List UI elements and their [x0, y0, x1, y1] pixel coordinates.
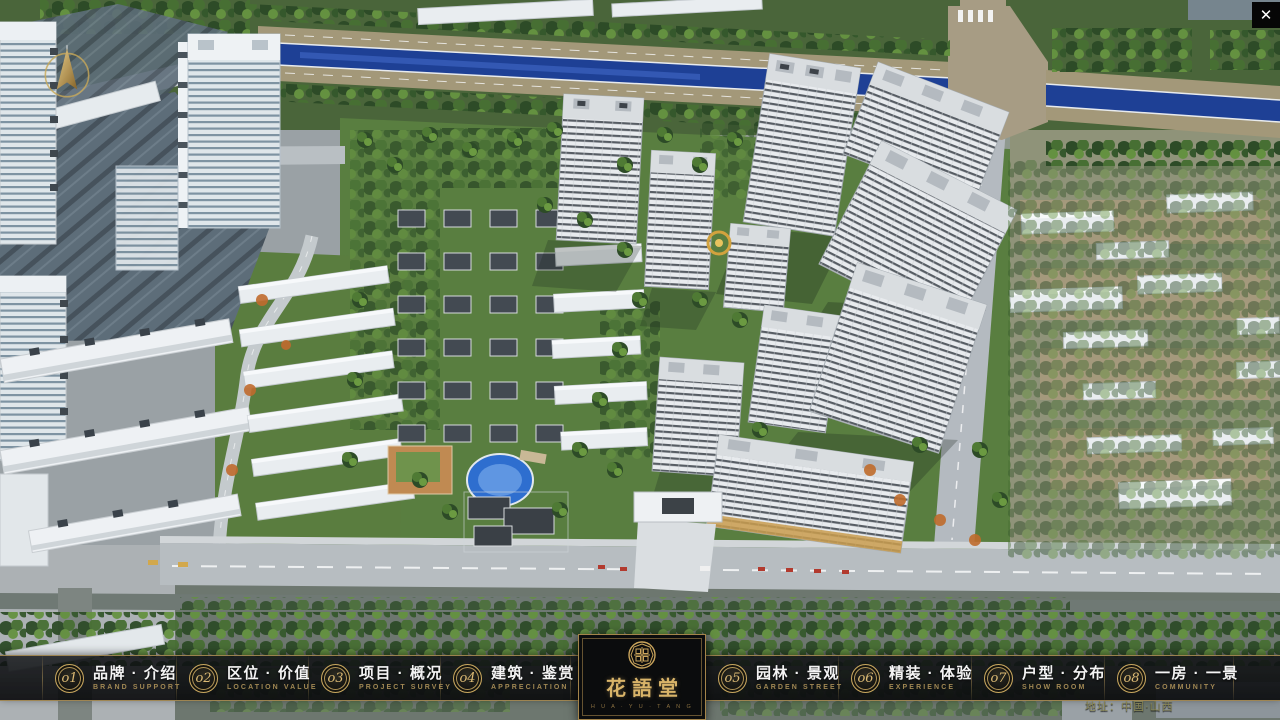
nav-item-brand-intro[interactable]: o1 品牌 · 介绍 BRAND SUPPORT: [42, 656, 174, 700]
nav-item-community[interactable]: o8 一房 · 一景 COMMUNITY: [1104, 656, 1236, 700]
nav-item-badge: o4: [453, 664, 482, 693]
nav-item-label-zh: 一房 · 一景: [1155, 666, 1239, 681]
nav-item-label-zh: 园林 · 景观: [756, 666, 843, 681]
app-window: ✕ o1 品牌 · 介绍 BRAND SUPPORT o2 区位 · 价值 LO…: [0, 0, 1280, 720]
nav-item-floorplans[interactable]: o7 户型 · 分布 SHOW ROOM: [971, 656, 1103, 700]
nav-item-badge: o6: [851, 664, 880, 693]
nav-item-badge: o2: [189, 664, 218, 693]
nav-item-label-en: COMMUNITY: [1155, 684, 1239, 691]
address-text: 地址：中国·山西: [1085, 698, 1174, 714]
nav-item-label-zh: 精装 · 体验: [889, 666, 973, 681]
logo-seal-icon: [627, 640, 657, 670]
masterplan-render: [0, 0, 1280, 720]
nav-item-label-en: SHOW ROOM: [1022, 684, 1106, 691]
nav-item-project-survey[interactable]: o3 项目 · 概况 PROJECT SURVEY: [308, 656, 440, 700]
close-button[interactable]: ✕: [1252, 2, 1280, 28]
nav-item-label-zh: 项目 · 概况: [359, 666, 452, 681]
logo-panel[interactable]: 花語堂 H U A · Y U · T A N G: [578, 634, 706, 720]
nav-item-label-zh: 建筑 · 鉴赏: [491, 666, 575, 681]
nav-item-badge: o3: [321, 664, 350, 693]
nav-item-label-en: APPRECIATION: [491, 684, 575, 691]
nav-item-experience[interactable]: o6 精装 · 体验 EXPERIENCE: [838, 656, 970, 700]
nav-item-garden-landscape[interactable]: o5 园林 · 景观 GARDEN STREET: [705, 656, 837, 700]
nav-item-label-en: BRAND SUPPORT: [93, 684, 181, 691]
nav-item-badge: o1: [55, 664, 84, 693]
logo-name: 花語堂: [600, 672, 684, 701]
nav-item-label-en: GARDEN STREET: [756, 684, 843, 691]
logo-subtitle: H U A · Y U · T A N G: [591, 704, 693, 710]
nav-item-architecture[interactable]: o4 建筑 · 鉴赏 APPRECIATION: [440, 656, 572, 700]
east-tree-overlay: [1008, 160, 1280, 560]
nav-item-badge: o5: [718, 664, 747, 693]
nav-item-label-zh: 品牌 · 介绍: [93, 666, 181, 681]
nav-item-label-en: PROJECT SURVEY: [359, 684, 452, 691]
nav-item-label-zh: 户型 · 分布: [1022, 666, 1106, 681]
nav-item-badge: o8: [1117, 664, 1146, 693]
nav-item-label-zh: 区位 · 价值: [227, 666, 318, 681]
nav-item-location-value[interactable]: o2 区位 · 价值 LOCATION VALUE: [176, 656, 308, 700]
nav-item-label-en: EXPERIENCE: [889, 684, 973, 691]
nav-item-badge: o7: [984, 664, 1013, 693]
nav-item-label-en: LOCATION VALUE: [227, 684, 318, 691]
